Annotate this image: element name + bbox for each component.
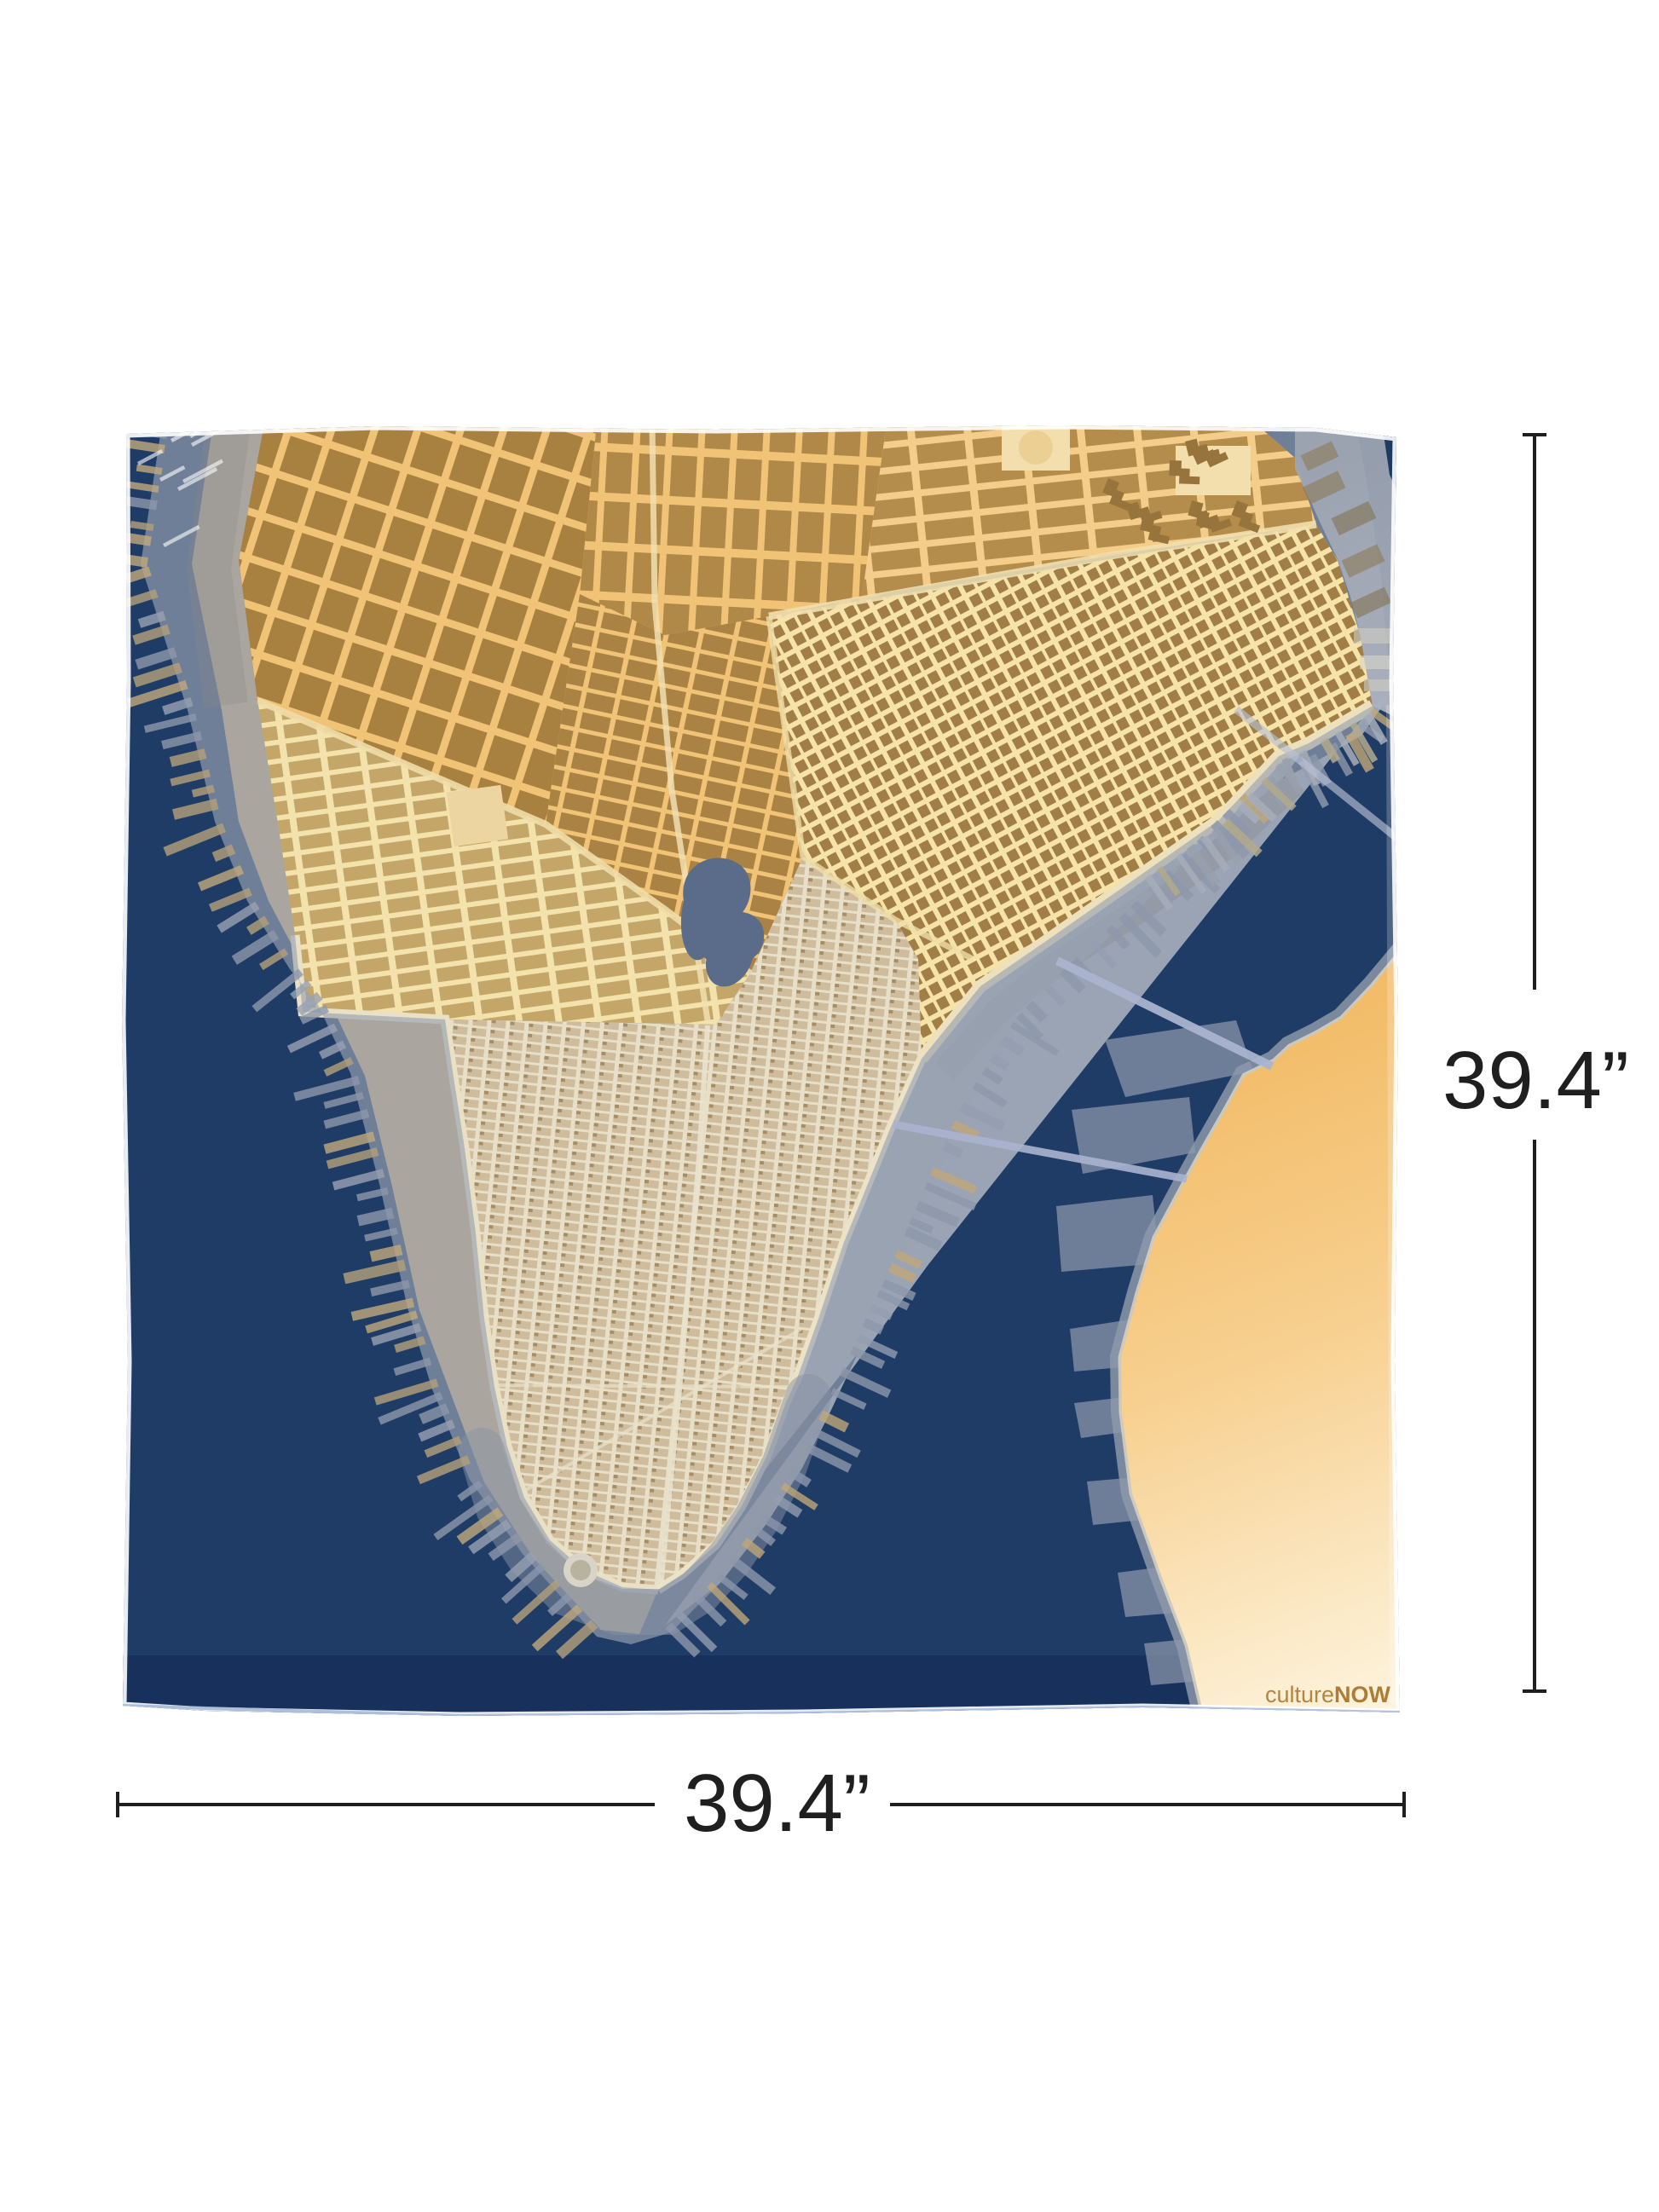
svg-text:cultureNOW: cultureNOW: [1265, 1682, 1391, 1707]
